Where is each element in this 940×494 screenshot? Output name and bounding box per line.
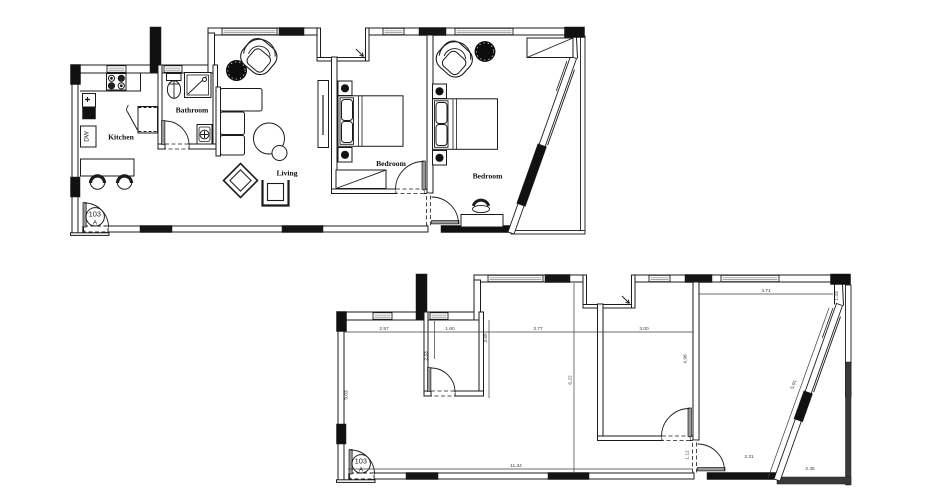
svg-text:4.98: 4.98 bbox=[683, 354, 689, 364]
svg-text:A: A bbox=[93, 220, 98, 227]
svg-text:103: 103 bbox=[89, 210, 101, 219]
svg-text:5.03: 5.03 bbox=[344, 390, 350, 400]
svg-text:3.65: 3.65 bbox=[483, 333, 489, 343]
svg-text:DW: DW bbox=[84, 131, 91, 142]
svg-text:Bedroom: Bedroom bbox=[376, 159, 406, 168]
svg-text:2.31: 2.31 bbox=[744, 454, 754, 460]
svg-text:1.12: 1.12 bbox=[685, 450, 691, 460]
svg-text:6.22: 6.22 bbox=[568, 375, 574, 385]
svg-text:103: 103 bbox=[355, 457, 367, 466]
svg-text:2.57: 2.57 bbox=[379, 326, 389, 332]
svg-text:11.34: 11.34 bbox=[510, 463, 522, 469]
svg-text:1.43: 1.43 bbox=[834, 291, 840, 301]
svg-text:3.00: 3.00 bbox=[639, 326, 649, 332]
svg-text:Bathroom: Bathroom bbox=[176, 106, 209, 115]
svg-text:1.60: 1.60 bbox=[445, 326, 455, 332]
svg-text:A: A bbox=[359, 467, 364, 474]
svg-text:4.71: 4.71 bbox=[761, 288, 771, 294]
svg-text:Kitchen: Kitchen bbox=[108, 133, 135, 142]
svg-text:Bedroom: Bedroom bbox=[473, 172, 503, 181]
svg-text:3.77: 3.77 bbox=[533, 326, 543, 332]
svg-text:Living: Living bbox=[276, 169, 297, 178]
svg-text:2.35: 2.35 bbox=[805, 466, 815, 472]
svg-text:2.33: 2.33 bbox=[424, 351, 430, 361]
